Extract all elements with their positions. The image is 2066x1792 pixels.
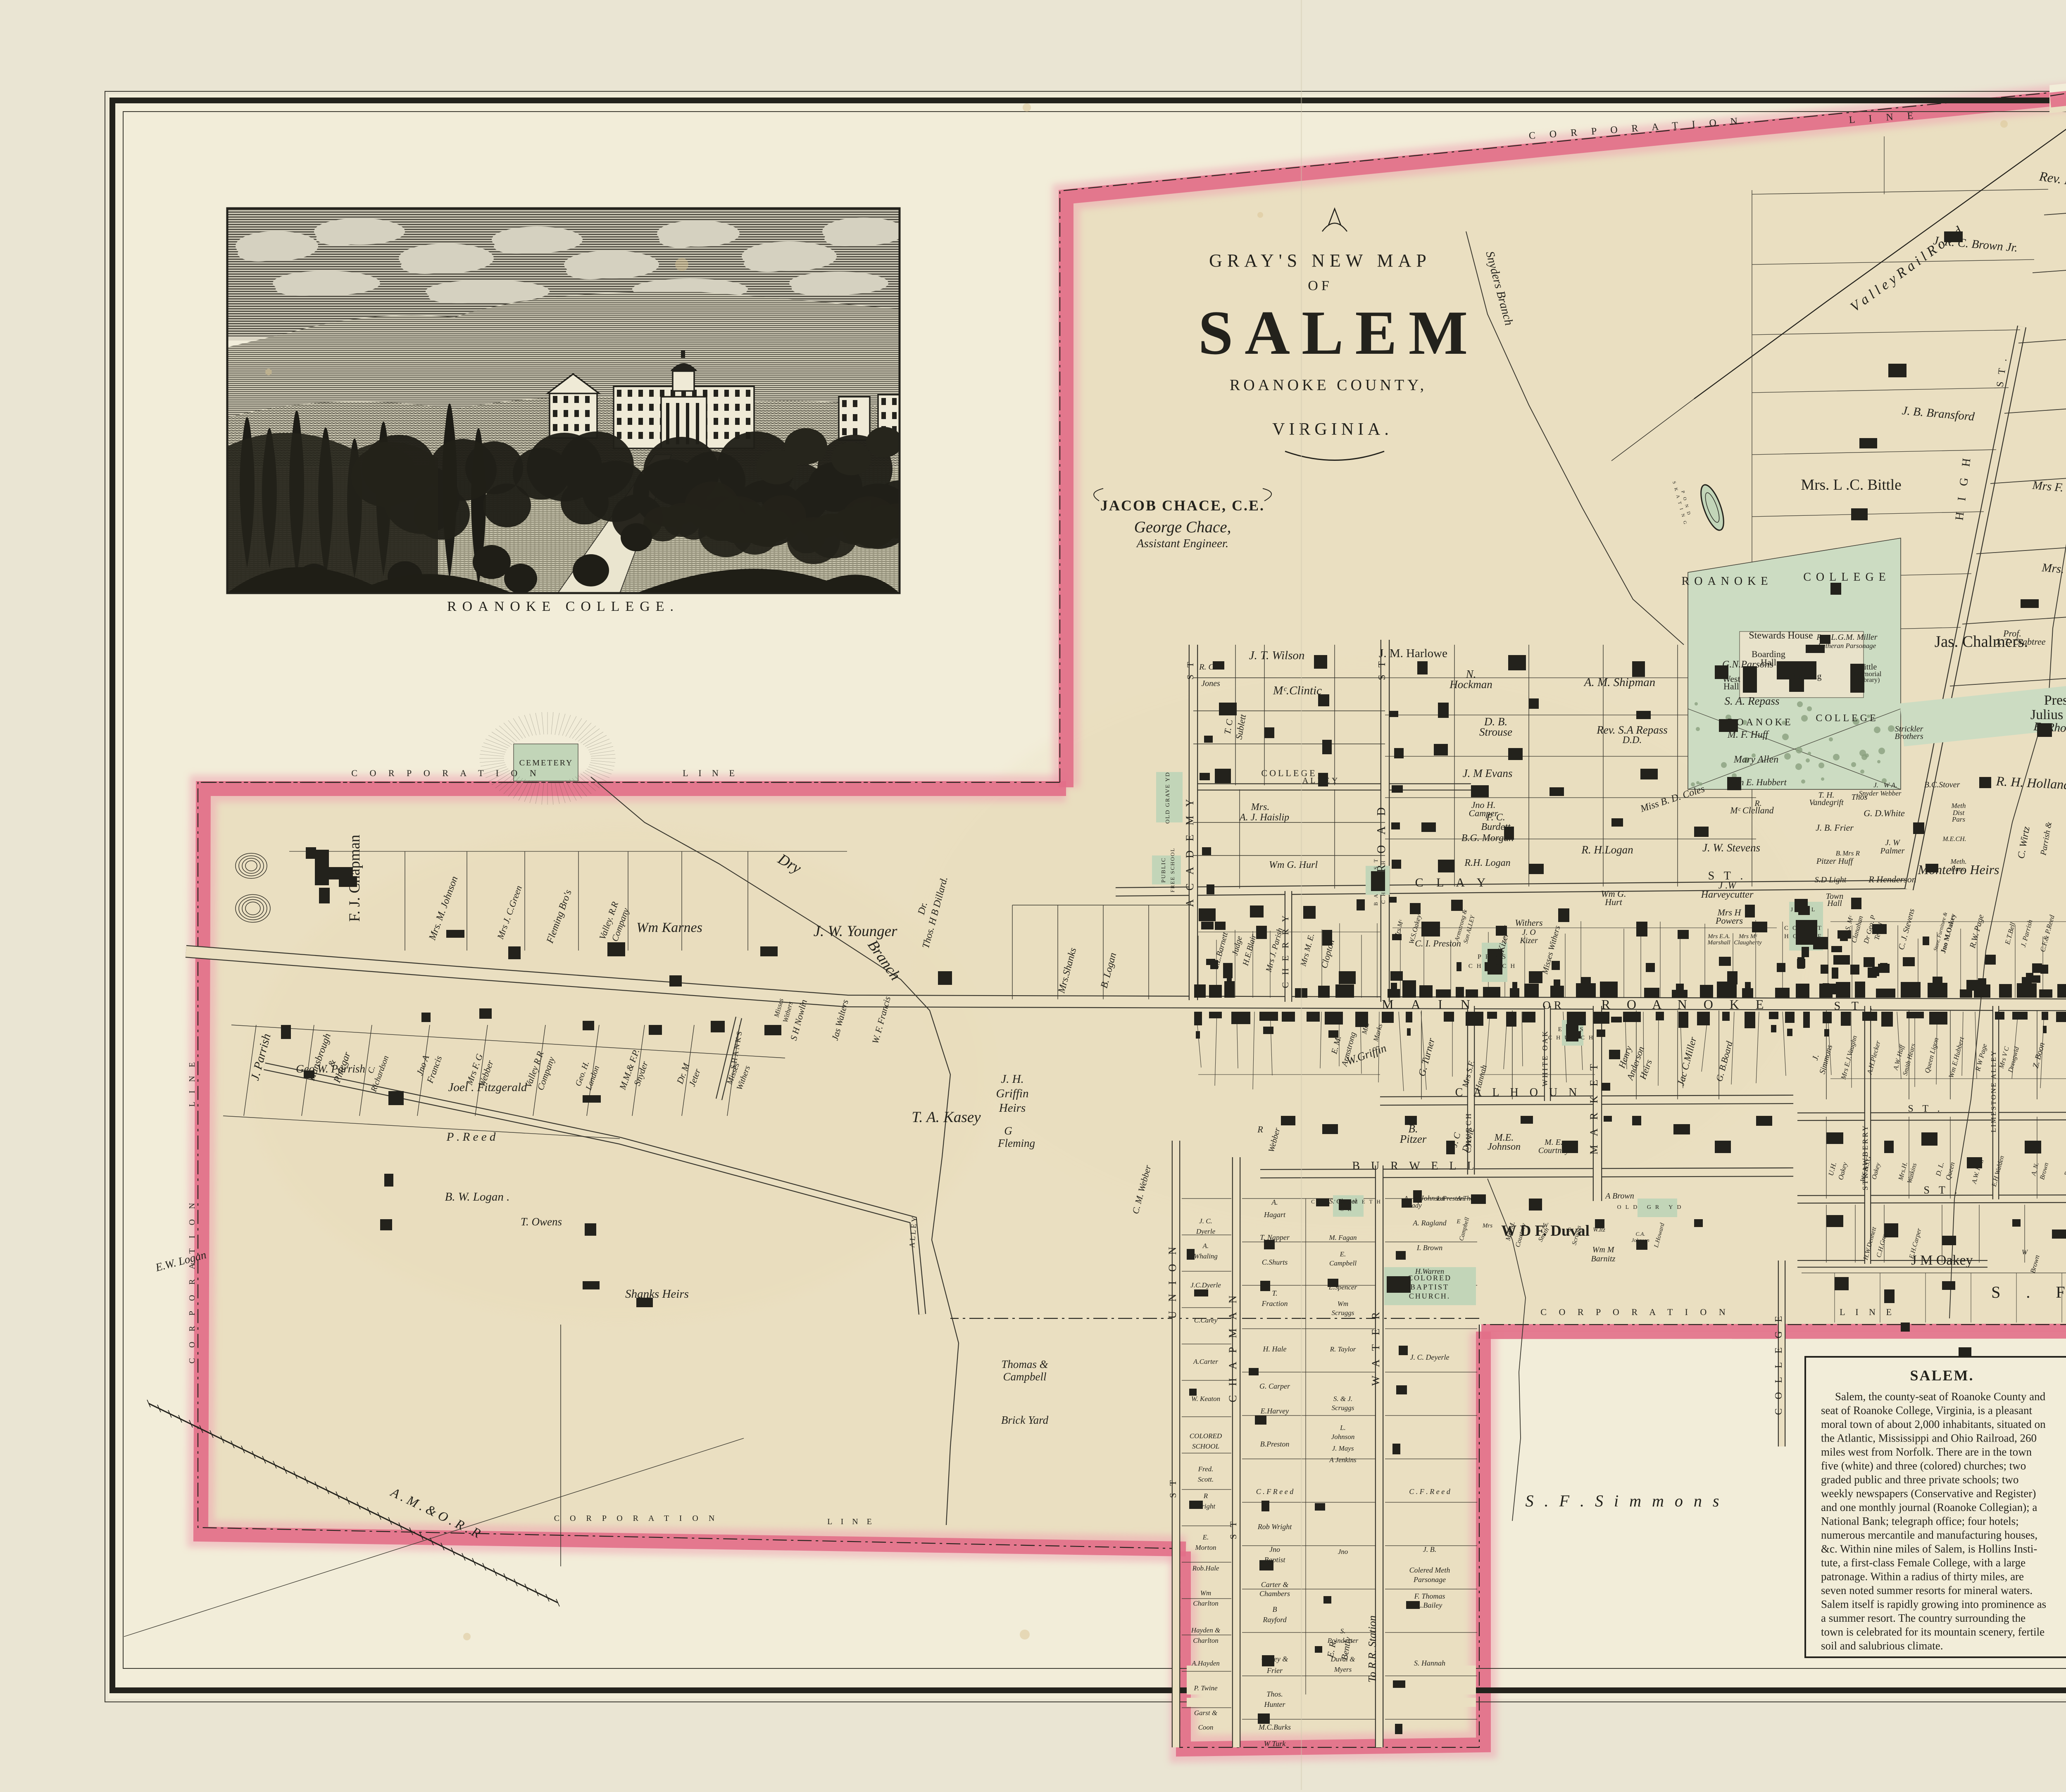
svg-text:Coon: Coon <box>1198 1723 1214 1731</box>
svg-text:J. W: J. W <box>1885 838 1901 847</box>
svg-text:J. T. Crabtree: J. T. Crabtree <box>1996 636 2046 647</box>
svg-text:graded public and three privat: graded public and three private schools;… <box>1821 1473 2018 1486</box>
svg-text:J. B. Frier: J. B. Frier <box>1816 822 1854 833</box>
svg-text:F. Thomas: F. Thomas <box>1414 1592 1445 1600</box>
svg-text:Scruggs: Scruggs <box>1332 1309 1354 1317</box>
svg-text:W A T E R: W A T E R <box>1370 1309 1382 1386</box>
svg-text:J. H.: J. H. <box>1001 1072 1024 1086</box>
svg-text:R. C: R. C <box>1199 662 1214 672</box>
svg-text:Kizer: Kizer <box>1519 936 1538 945</box>
svg-text:Mᶜ Clelland: Mᶜ Clelland <box>1730 805 1774 815</box>
svg-text:Pars: Pars <box>1952 815 1966 823</box>
svg-text:George Chace,: George Chace, <box>1134 518 1231 536</box>
svg-text:Pars.: Pars. <box>1951 865 1966 873</box>
svg-text:C O R P O R A T I O N: C O R P O R A T I O N <box>188 1199 197 1364</box>
svg-text:J.C.Dyerle: J.C.Dyerle <box>1190 1281 1221 1289</box>
svg-text:Stewards House: Stewards House <box>1749 630 1813 641</box>
svg-text:Heirs: Heirs <box>999 1101 1026 1115</box>
svg-text:SALEM: SALEM <box>1198 298 1480 367</box>
svg-text:W Turk: W Turk <box>1264 1740 1286 1748</box>
svg-text:A.: A. <box>1202 1242 1209 1250</box>
svg-text:A.: A. <box>1271 1198 1278 1206</box>
svg-text:S. & J.: S. & J. <box>1333 1395 1352 1403</box>
svg-text:weekly newspapers (Conservativ: weekly newspapers (Conservative and Regi… <box>1821 1487 2036 1500</box>
svg-text:Mrs. L .C. Bittle: Mrs. L .C. Bittle <box>1801 477 1901 493</box>
svg-text:M.E.CH.: M.E.CH. <box>1942 836 1966 843</box>
svg-text:COLLEGE: COLLEGE <box>1261 768 1317 778</box>
svg-text:(Library): (Library) <box>1856 677 1880 684</box>
svg-text:T. A. Kasey: T. A. Kasey <box>912 1109 981 1126</box>
svg-text:E.: E. <box>1202 1533 1209 1541</box>
svg-text:Geo W. Parrish: Geo W. Parrish <box>296 1063 365 1075</box>
svg-text:Mrs.: Mrs. <box>1251 802 1270 813</box>
svg-text:A. Ragland: A. Ragland <box>1413 1219 1447 1227</box>
svg-text:L I N E: L I N E <box>683 768 739 778</box>
svg-text:Building: Building <box>1790 671 1821 681</box>
svg-text:Jno: Jno <box>1338 1548 1348 1556</box>
svg-text:J. W. Stevens: J. W. Stevens <box>1702 841 1760 854</box>
svg-text:Mary Allen: Mary Allen <box>1733 754 1778 765</box>
svg-text:Brick Yard: Brick Yard <box>1001 1414 1049 1426</box>
svg-text:B.C.Stover: B.C.Stover <box>1924 780 1960 789</box>
svg-text:OF: OF <box>1308 278 1332 293</box>
svg-text:J. T. Wilson: J. T. Wilson <box>1249 649 1305 662</box>
svg-text:Johnson: Johnson <box>1631 1237 1649 1243</box>
svg-text:S. Chapel: S. Chapel <box>1329 1197 1357 1205</box>
svg-text:President: President <box>2044 693 2066 708</box>
svg-text:Charlton: Charlton <box>1193 1599 1218 1607</box>
svg-text:C L A Y: C L A Y <box>1415 876 1491 889</box>
svg-text:U N I O N: U N I O N <box>1166 1244 1178 1319</box>
svg-text:seven noted summer resorts for: seven noted summer resorts for mineral w… <box>1821 1584 2033 1597</box>
svg-text:Hayden &: Hayden & <box>1191 1626 1221 1634</box>
svg-text:E.: E. <box>1340 1250 1346 1258</box>
svg-text:Lutheran Parsonage: Lutheran Parsonage <box>1818 642 1876 650</box>
svg-text:M A R K E T: M A R K E T <box>1588 1061 1600 1155</box>
svg-text:C . F . R e e d: C . F . R e e d <box>1409 1487 1450 1496</box>
svg-text:S T: S T <box>1168 1478 1178 1498</box>
svg-text:Mᶜ.Clintic: Mᶜ.Clintic <box>1273 684 1322 697</box>
svg-text:Brady: Brady <box>1404 1201 1422 1209</box>
svg-text:tute, a first-class Female Col: tute, a first-class Female College, with… <box>1821 1556 2026 1569</box>
svg-text:moral town of about 2,000 inha: moral town of about 2,000 inhabitants, s… <box>1821 1418 2046 1430</box>
svg-text:B U R W E L L: B U R W E L L <box>1352 1160 1478 1172</box>
svg-text:Thomas &: Thomas & <box>1001 1358 1048 1370</box>
svg-text:Colered Meth: Colered Meth <box>1409 1566 1450 1574</box>
svg-text:J. O: J. O <box>1522 928 1535 937</box>
svg-text:S . F . S i m m o n s: S . F . S i m m o n s <box>1526 1492 1723 1510</box>
svg-text:Shanks Heirs: Shanks Heirs <box>625 1287 689 1301</box>
svg-text:JACOB CHACE, C.E.: JACOB CHACE, C.E. <box>1100 497 1265 514</box>
svg-text:miles west from Norfolk. Ther: miles west from Norfolk. There are in th… <box>1821 1446 2032 1458</box>
svg-text:Baptist: Baptist <box>1264 1556 1285 1564</box>
svg-text:Parsonage: Parsonage <box>1413 1575 1446 1584</box>
svg-text:seat of Roanoke College, Virgi: seat of Roanoke College, Virginia, is a … <box>1821 1404 2033 1417</box>
svg-text:OLD GR YD: OLD GR YD <box>1617 1204 1685 1211</box>
svg-text:Hurt: Hurt <box>1604 897 1622 907</box>
svg-text:a summer resort. The country: a summer resort. The country surrounding… <box>1821 1612 2026 1624</box>
svg-text:Hockman: Hockman <box>1449 678 1492 691</box>
svg-text:M A I N: M A I N <box>1382 997 1478 1012</box>
svg-text:C O R P O R A T I O N: C O R P O R A T I O N <box>351 768 541 778</box>
svg-text:BAPTIST: BAPTIST <box>1410 1283 1449 1291</box>
svg-text:Oakey &: Oakey & <box>1261 1655 1288 1663</box>
svg-text:A.Carter: A.Carter <box>1193 1358 1218 1365</box>
svg-text:EPIS: EPIS <box>1558 1026 1588 1033</box>
svg-text:Campbell: Campbell <box>1329 1259 1357 1267</box>
svg-text:J.: J. <box>1873 781 1878 789</box>
svg-text:Dyerle: Dyerle <box>1196 1227 1216 1235</box>
svg-text:C O R P O R A T I O N: C O R P O R A T I O N <box>1540 1307 1730 1317</box>
svg-text:E.Harvey: E.Harvey <box>1260 1407 1289 1415</box>
svg-text:Burdett: Burdett <box>1481 822 1511 832</box>
svg-text:B. W. Logan .: B. W. Logan . <box>445 1190 510 1203</box>
svg-text:Rob.Hale: Rob.Hale <box>1192 1564 1219 1572</box>
svg-text:Vandegrift: Vandegrift <box>1809 798 1844 807</box>
svg-text:A Jenkins: A Jenkins <box>1329 1456 1357 1464</box>
svg-text:J. Mays: J. Mays <box>1332 1444 1354 1452</box>
svg-text:P . R e e d: P . R e e d <box>446 1130 496 1144</box>
svg-text:M. E.: M. E. <box>1544 1138 1563 1147</box>
svg-text:ROANOKE: ROANOKE <box>1727 717 1793 728</box>
svg-text:L I N E: L I N E <box>188 1059 197 1107</box>
svg-text:G. D.White: G. D.White <box>1864 808 1905 818</box>
svg-text:Powers: Powers <box>1715 915 1743 926</box>
svg-text:Wm G. Hurl: Wm G. Hurl <box>1269 860 1318 870</box>
svg-text:Strouse: Strouse <box>1479 726 1512 738</box>
svg-text:OLD GRAVE YD: OLD GRAVE YD <box>1165 772 1171 824</box>
svg-text:C H A P M A N: C H A P M A N <box>1227 1292 1239 1402</box>
svg-text:Jones: Jones <box>1201 679 1220 688</box>
svg-text:S T .: S T . <box>1924 1184 1961 1196</box>
svg-text:HOUSE: HOUSE <box>1784 933 1826 940</box>
svg-text:Barnitz: Barnitz <box>1591 1254 1616 1263</box>
svg-text:ROANOKE COUNTY,: ROANOKE COUNTY, <box>1230 377 1427 394</box>
svg-text:C H E R R Y: C H E R R Y <box>1280 913 1290 988</box>
svg-text:&c. Within nine miles of Sale: &c. Within nine miles of Salem, is Holli… <box>1821 1543 2037 1555</box>
svg-text:CHURCH: CHURCH <box>1380 857 1386 904</box>
svg-text:Griffin: Griffin <box>996 1087 1029 1100</box>
svg-text:patronage. Within a radius of: patronage. Within a radius of thirty mil… <box>1821 1570 2024 1583</box>
svg-text:Harveycutter: Harveycutter <box>1701 889 1754 900</box>
svg-text:COLORED: COLORED <box>1190 1432 1222 1440</box>
svg-text:Morton: Morton <box>1195 1544 1216 1551</box>
svg-text:GRAY'S NEW MAP: GRAY'S NEW MAP <box>1209 250 1431 271</box>
svg-text:Wm M: Wm M <box>1592 1245 1615 1254</box>
svg-text:S T: S T <box>1377 659 1388 680</box>
svg-text:Charlton: Charlton <box>1193 1637 1218 1644</box>
svg-text:town is celebrated for its mou: town is celebrated for its mountain scen… <box>1821 1626 2045 1638</box>
svg-text:B.G. Morgan: B.G. Morgan <box>1461 833 1514 844</box>
svg-text:T. Napper: T. Napper <box>1260 1233 1290 1242</box>
svg-text:Campbell: Campbell <box>1003 1370 1047 1383</box>
svg-text:To R.R. Station: To R.R. Station <box>1366 1616 1378 1683</box>
svg-text:E: E <box>1456 1218 1460 1225</box>
svg-text:S. A. Repass: S. A. Repass <box>1725 695 1780 707</box>
svg-text:Whaling: Whaling <box>1194 1252 1218 1260</box>
svg-text:G: G <box>1004 1125 1012 1137</box>
svg-text:ROANOKE COLLEGE.: ROANOKE COLLEGE. <box>447 599 679 614</box>
svg-text:S T: S T <box>1228 1519 1238 1539</box>
svg-text:L I N E: L I N E <box>1840 1307 1896 1317</box>
svg-text:CH: CH <box>1340 1206 1356 1212</box>
svg-text:S.: S. <box>1568 1227 1572 1233</box>
svg-text:A Thomas: A Thomas <box>1457 1194 1485 1202</box>
svg-text:C.Carey: C.Carey <box>1194 1316 1218 1324</box>
svg-text:Joel . Fitzgerald: Joel . Fitzgerald <box>448 1081 527 1094</box>
svg-text:S.: S. <box>1340 1627 1346 1635</box>
svg-text:Snyder Webber: Snyder Webber <box>1859 789 1902 797</box>
svg-text:Assistant Engineer.: Assistant Engineer. <box>1136 537 1228 550</box>
svg-text:Frier: Frier <box>1266 1666 1283 1675</box>
svg-text:A. J. Haislip: A. J. Haislip <box>1239 812 1289 823</box>
svg-text:Fred.: Fred. <box>1198 1465 1214 1473</box>
svg-text:Hunter: Hunter <box>1264 1700 1286 1709</box>
svg-text:SALEM.: SALEM. <box>1910 1367 1974 1384</box>
svg-text:F. J. Chapman: F. J. Chapman <box>346 835 363 922</box>
svg-text:W. Keaton: W. Keaton <box>1191 1395 1220 1403</box>
svg-text:FREE SCHOOL: FREE SCHOOL <box>1169 847 1176 892</box>
svg-text:SCHOOL: SCHOOL <box>1192 1442 1219 1450</box>
svg-text:LIMESTONE ALLEY: LIMESTONE ALLEY <box>1990 1050 1997 1132</box>
svg-text:Brothers: Brothers <box>1895 732 1923 741</box>
svg-text:G.N.Parsons: G.N.Parsons <box>1722 659 1773 670</box>
svg-text:T. Owens: T. Owens <box>521 1215 562 1228</box>
svg-text:Scott.: Scott. <box>1198 1475 1214 1483</box>
svg-text:J. W. Younger: J. W. Younger <box>814 923 897 940</box>
svg-text:P. Twine: P. Twine <box>1194 1684 1218 1692</box>
svg-text:Pitzer: Pitzer <box>1400 1133 1427 1145</box>
svg-text:C.A.: C.A. <box>1635 1231 1645 1237</box>
svg-text:Courtney: Courtney <box>1538 1146 1569 1155</box>
svg-text:R. H.Logan: R. H.Logan <box>1581 844 1633 856</box>
svg-text:five (white) and three (colore: five (white) and three (colored) churche… <box>1821 1460 2026 1472</box>
svg-text:COLLEGE: COLLEGE <box>1816 713 1878 724</box>
svg-text:Meth.: Meth. <box>1950 858 1966 865</box>
svg-text:R.H. Logan: R.H. Logan <box>1464 858 1510 868</box>
svg-text:Rev. S.A Repass: Rev. S.A Repass <box>1596 724 1667 736</box>
svg-text:Wm E. Hubbert: Wm E. Hubbert <box>1730 777 1787 787</box>
svg-text:R Henderson: R Henderson <box>1868 874 1916 884</box>
svg-text:Thos.: Thos. <box>1266 1690 1283 1698</box>
svg-text:J. C.: J. C. <box>1199 1217 1212 1225</box>
svg-text:Fleming: Fleming <box>997 1137 1035 1149</box>
svg-text:Hagart: Hagart <box>1264 1211 1286 1219</box>
svg-text:Mrs R: Mrs R <box>1842 849 1860 857</box>
svg-text:W A.: W A. <box>1884 781 1897 789</box>
svg-text:C.Shurts: C.Shurts <box>1262 1258 1288 1266</box>
svg-text:Myers: Myers <box>1334 1666 1352 1673</box>
svg-text:Chambers: Chambers <box>1259 1589 1290 1598</box>
svg-text:J M Oakey: J M Oakey <box>1911 1253 1973 1268</box>
svg-text:A Brown: A Brown <box>1604 1191 1634 1201</box>
svg-text:W: W <box>2022 1248 2028 1256</box>
svg-text:Mrs: Mrs <box>1482 1222 1492 1229</box>
svg-text:Rayford: Rayford <box>1262 1616 1287 1624</box>
svg-text:T.: T. <box>1272 1289 1277 1297</box>
svg-text:COLLEGE: COLLEGE <box>1803 571 1891 584</box>
svg-text:Carter &: Carter & <box>1261 1580 1289 1589</box>
svg-text:Wright: Wright <box>1196 1502 1216 1510</box>
svg-text:L I N E: L I N E <box>827 1517 875 1526</box>
svg-text:Johnson: Johnson <box>1488 1141 1521 1152</box>
svg-text:M. Fagan: M. Fagan <box>1328 1234 1357 1242</box>
svg-text:R: R <box>1257 1124 1263 1134</box>
svg-text:J. C. Deyerle: J. C. Deyerle <box>1410 1353 1450 1361</box>
svg-text:Julius D Dreher .: Julius D Dreher . <box>2030 707 2066 722</box>
svg-text:soil and salubrious climate.: soil and salubrious climate. <box>1821 1639 1943 1652</box>
svg-text:S . F . S i m m o n s: S . F . S i m m o n s <box>1991 1283 2066 1301</box>
svg-text:Camper: Camper <box>1469 808 1498 818</box>
svg-text:A.Hayden: A.Hayden <box>1191 1659 1220 1667</box>
svg-text:M.C.Burks: M.C.Burks <box>1258 1723 1291 1731</box>
svg-text:and one monthly journal (Roano: and one monthly journal (Roanoke Collegi… <box>1821 1501 2037 1513</box>
svg-text:S T: S T <box>1185 660 1195 680</box>
svg-text:Mrs Mᶜ: Mrs Mᶜ <box>1738 933 1757 940</box>
svg-text:Palmer: Palmer <box>1880 846 1905 855</box>
svg-text:B: B <box>1273 1605 1277 1613</box>
svg-text:CHURCH: CHURCH <box>1548 1035 1597 1041</box>
svg-text:Salem, the county-seat of Roan: Salem, the county-seat of Roanoke County… <box>1835 1390 2046 1403</box>
svg-text:Wm: Wm <box>1200 1589 1211 1597</box>
svg-text:JAIL: JAIL <box>1791 907 1819 913</box>
svg-text:C O L L E G E: C O L L E G E <box>1773 1313 1784 1415</box>
svg-text:H.Warren: H.Warren <box>1415 1267 1444 1275</box>
svg-text:G. Carper: G. Carper <box>1259 1382 1290 1390</box>
svg-text:Marshall: Marshall <box>1707 939 1730 946</box>
svg-text:Wm Karnes: Wm Karnes <box>636 920 702 935</box>
svg-text:VIRGINIA.: VIRGINIA. <box>1272 420 1393 439</box>
svg-text:Mrs E.A.: Mrs E.A. <box>1707 933 1730 940</box>
svg-text:ROANOKE: ROANOKE <box>1682 575 1773 588</box>
svg-text:B.Preston: B.Preston <box>1260 1440 1290 1448</box>
svg-text:National Bank; telegraph offic: National Bank; telegraph office; four ho… <box>1821 1515 2019 1527</box>
svg-text:Fraction: Fraction <box>1261 1299 1288 1308</box>
svg-text:S. Hannah: S. Hannah <box>1414 1659 1445 1667</box>
svg-text:J. M Evans: J. M Evans <box>1463 767 1513 779</box>
svg-text:CHURCH.: CHURCH. <box>1409 1292 1451 1300</box>
svg-text:C O R P O R A T I O N: C O R P O R A T I O N <box>554 1514 719 1523</box>
svg-text:J. B.: J. B. <box>1423 1545 1436 1554</box>
svg-text:CEMETERY: CEMETERY <box>519 758 574 767</box>
svg-text:numerous mercantile and manufa: numerous mercantile and manufacturing ho… <box>1821 1529 2037 1541</box>
svg-text:L.: L. <box>1340 1424 1346 1432</box>
svg-text:R. Taylor: R. Taylor <box>1330 1345 1356 1353</box>
svg-text:A. M. Shipman: A. M. Shipman <box>1583 676 1655 689</box>
svg-text:B.: B. <box>1836 849 1842 857</box>
svg-text:J. M. Harlowe: J. M. Harlowe <box>1379 647 1447 660</box>
svg-text:L.Spencer: L.Spencer <box>1328 1283 1357 1291</box>
svg-text:COURT: COURT <box>1784 925 1826 932</box>
svg-text:S T .: S T . <box>1908 1103 1943 1114</box>
svg-text:I. Brown: I. Brown <box>1416 1244 1442 1252</box>
svg-text:R O A N O K E: R O A N O K E <box>1602 997 1771 1012</box>
svg-text:C . F R e e d: C . F R e e d <box>1256 1487 1294 1496</box>
svg-text:Salem itself is rapidly growin: Salem itself is rapidly growing into pro… <box>1821 1598 2046 1611</box>
svg-text:Johnson: Johnson <box>1331 1433 1355 1441</box>
svg-text:S.D Light: S.D Light <box>1815 875 1847 884</box>
svg-text:the Atlantic, Mississippi and: the Atlantic, Mississippi and Ohio Railr… <box>1821 1432 2037 1444</box>
svg-text:OR: OR <box>1542 999 1565 1011</box>
svg-text:D.D.: D.D. <box>1622 735 1642 746</box>
svg-text:Claugherty: Claugherty <box>1734 939 1762 946</box>
svg-text:Hall: Hall <box>1723 681 1739 691</box>
svg-text:Jno: Jno <box>1269 1545 1280 1554</box>
svg-text:W.Itz: W.Itz <box>1593 1227 1605 1233</box>
svg-text:L.Bailey: L.Bailey <box>1417 1601 1442 1609</box>
svg-text:Wm: Wm <box>1338 1300 1348 1308</box>
svg-text:Garst &: Garst & <box>1194 1709 1218 1717</box>
svg-text:Pitzer Huff: Pitzer Huff <box>1816 857 1854 866</box>
svg-text:M. F. Huff: M. F. Huff <box>1727 729 1770 740</box>
svg-text:Rob Wright: Rob Wright <box>1257 1523 1292 1531</box>
svg-text:PUBLIC: PUBLIC <box>1161 857 1167 883</box>
svg-text:Rev L.G.M. Miller: Rev L.G.M. Miller <box>1816 633 1877 642</box>
svg-text:A C A D E M Y: A C A D E M Y <box>1184 796 1196 907</box>
svg-text:R: R <box>1203 1492 1208 1500</box>
svg-text:Scruggs: Scruggs <box>1332 1404 1354 1412</box>
svg-text:BAPTIST: BAPTIST <box>1373 855 1379 906</box>
svg-text:H. Hale: H. Hale <box>1263 1345 1287 1353</box>
svg-text:Withers: Withers <box>1515 917 1542 928</box>
svg-text:S T .: S T . <box>1834 1000 1877 1013</box>
svg-text:Hall: Hall <box>1827 899 1842 908</box>
